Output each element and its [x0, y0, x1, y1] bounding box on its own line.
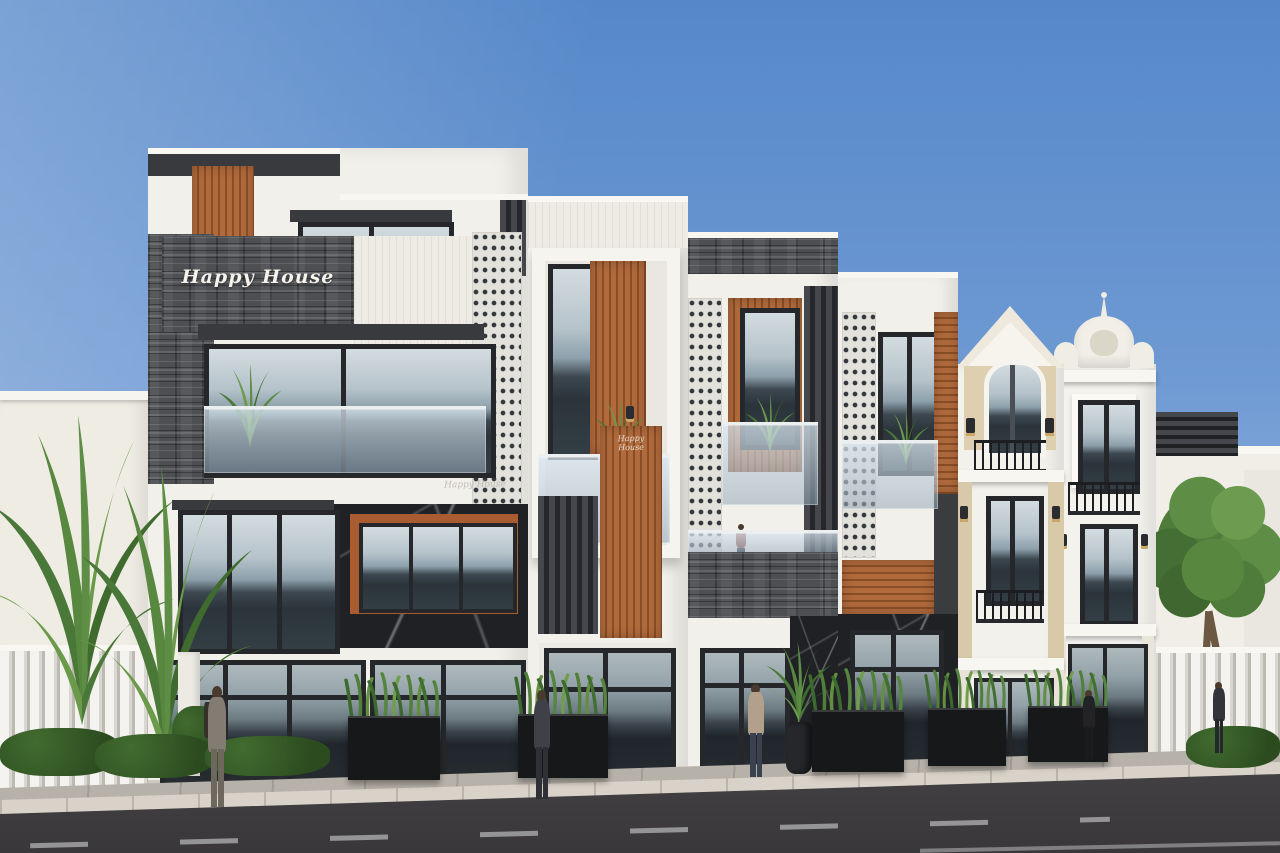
pedestrian-3 [744, 684, 768, 778]
t6-mid-window [1080, 524, 1138, 626]
vase-palm [762, 640, 836, 726]
t5-sconce-right [1052, 506, 1060, 522]
t2-parapet-band [528, 202, 688, 248]
t4-parapet-cap [838, 272, 958, 278]
pedestrian-4 [1080, 690, 1098, 760]
pedestrian-2 [530, 690, 554, 800]
pedestrian-5-body [1213, 688, 1225, 720]
t1-small-sign: Happy House [444, 479, 506, 498]
t6-finial-ball [1101, 292, 1107, 298]
pedestrian-5-leg [1220, 719, 1224, 753]
planter-4 [928, 708, 1006, 764]
t4-timber-band [842, 560, 934, 614]
t5-lantern-right [1045, 418, 1054, 436]
t3-stone-parapet [688, 552, 838, 618]
pedestrian-1-leg [218, 749, 224, 806]
pedestrian-3-leg [750, 733, 755, 777]
fence-right-cap [1146, 647, 1280, 653]
planter-2-grass [514, 670, 612, 718]
pedestrian-2-body [534, 700, 550, 750]
rooftop-louvre-box [1154, 412, 1238, 456]
pedestrian-4-body [1083, 696, 1095, 728]
t1-window-header-top [290, 210, 452, 222]
t5-lantern-left [966, 418, 975, 436]
hedge-right [1186, 726, 1280, 768]
planter-1 [348, 716, 440, 778]
t6-upper-window [1078, 400, 1140, 494]
t6-cornice-lower [1052, 624, 1156, 636]
pedestrian-4-leg [1085, 726, 1089, 759]
t6-cornice-top [1052, 370, 1156, 382]
t2-wall-sconce [626, 406, 634, 422]
t6-scroll-right [1130, 342, 1154, 368]
pedestrian-3-body [748, 692, 764, 734]
planter-5-grass [1024, 668, 1112, 710]
pedestrian-2-leg [543, 747, 548, 799]
t1-timber-framed-window [350, 514, 518, 614]
planter-1-grass [344, 672, 444, 720]
t2-louvre-screen [538, 496, 598, 634]
t5-cornice-upper [956, 470, 1064, 482]
pedestrian-5-leg [1215, 719, 1219, 753]
t4-breezeblock-strip [842, 312, 876, 558]
t2-entry-timber-panel [600, 426, 662, 638]
t6-sconce-right [1141, 534, 1148, 549]
t3-stone-band [688, 238, 838, 274]
t6-cartouche-ornament [1090, 330, 1118, 356]
planter-4-grass [924, 668, 1010, 712]
happy-house-sign: Happy House [172, 266, 344, 296]
pedestrian-3-leg [757, 733, 762, 777]
architectural-render: Happy House Happy House Happy House [0, 0, 1280, 853]
t1-window-header-mid [198, 324, 484, 340]
t3-glass-balustrade [722, 422, 818, 505]
pedestrian-1-body [208, 697, 226, 752]
t3-breezeblock-screen [688, 298, 722, 558]
t5-iron-balcony-upper [974, 440, 1046, 473]
pedestrian-5 [1210, 682, 1228, 754]
t2-door-sign: Happy House [604, 434, 658, 449]
pedestrian-1 [204, 686, 231, 808]
pedestrian-2-leg [536, 747, 541, 799]
vase-planter [782, 640, 816, 776]
t5-iron-balcony-mid [976, 590, 1044, 623]
pedestrian-1-leg [211, 749, 217, 806]
t4-glass-balustrade [842, 440, 938, 509]
wall-coping [0, 391, 152, 400]
t5-sconce-left [960, 506, 968, 522]
hedge-left-2 [95, 734, 215, 778]
t6-iron-balcony-upper [1068, 482, 1140, 515]
pedestrian-4-leg [1090, 726, 1094, 759]
